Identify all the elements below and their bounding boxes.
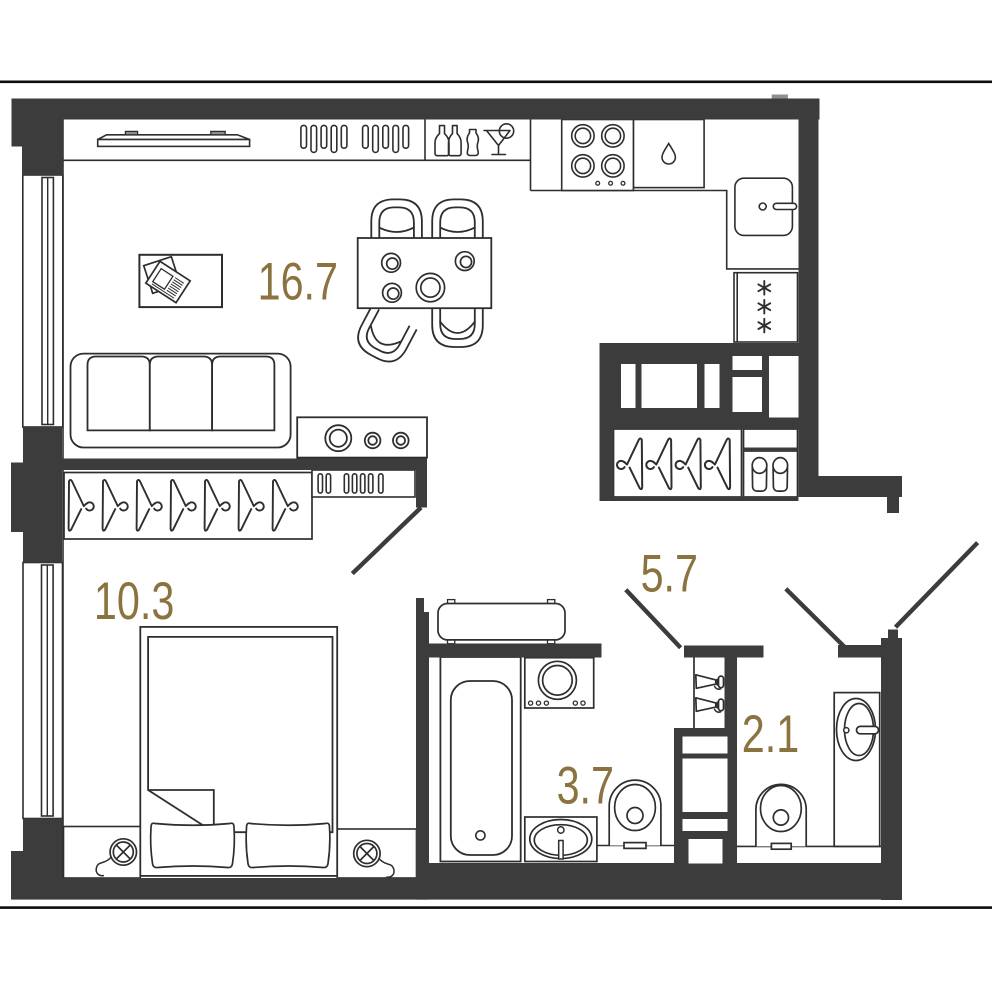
svg-text:2.1: 2.1: [742, 705, 799, 764]
svg-text:16.7: 16.7: [258, 252, 338, 311]
svg-text:3.7: 3.7: [557, 756, 614, 815]
svg-text:5.7: 5.7: [641, 544, 698, 603]
svg-text:10.3: 10.3: [94, 572, 174, 631]
